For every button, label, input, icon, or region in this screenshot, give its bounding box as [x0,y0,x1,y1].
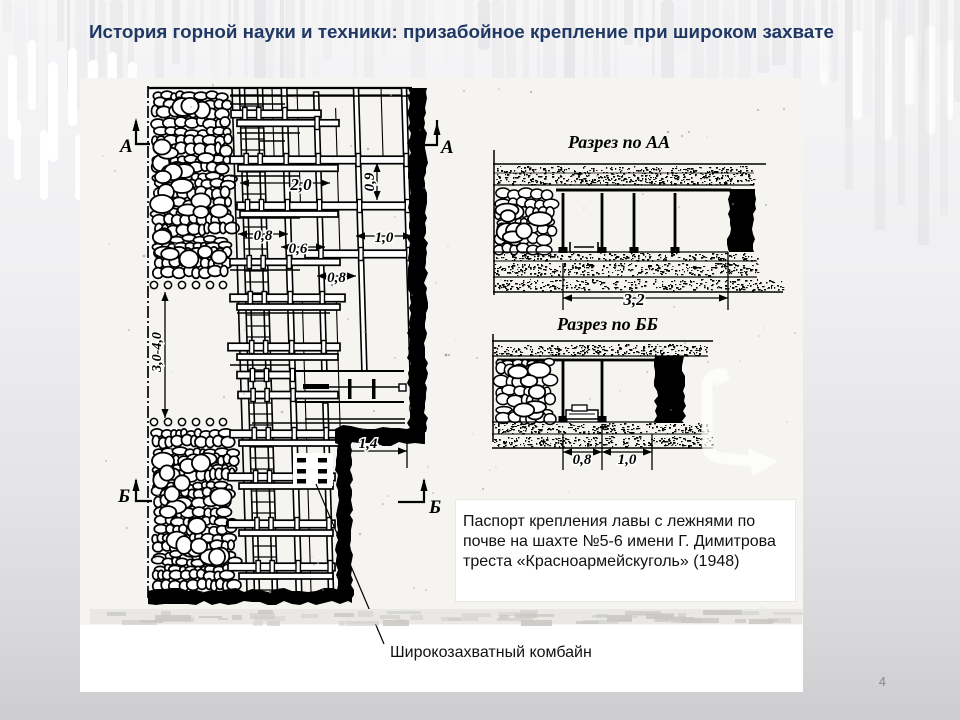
svg-text:А: А [119,136,133,157]
svg-text:0,8: 0,8 [573,452,592,468]
svg-text:3,0-4,0: 3,0-4,0 [150,332,165,373]
svg-text:Б: Б [428,497,441,518]
svg-text:0,9: 0,9 [362,172,378,191]
svg-text:0,6: 0,6 [289,241,308,257]
svg-text:0,8: 0,8 [327,270,346,286]
svg-text:1,0: 1,0 [618,452,637,468]
svg-text:А: А [440,137,454,158]
svg-text:1,4: 1,4 [359,436,378,452]
svg-text:Разрез по ББ: Разрез по ББ [556,314,658,334]
svg-text:Разрез по АА: Разрез по АА [567,132,670,152]
svg-text:1,0: 1,0 [375,230,394,246]
svg-text:Б: Б [117,486,130,507]
svg-text:2,0: 2,0 [289,175,312,194]
svg-text:0,8: 0,8 [254,228,273,244]
svg-text:3,2: 3,2 [622,290,645,309]
